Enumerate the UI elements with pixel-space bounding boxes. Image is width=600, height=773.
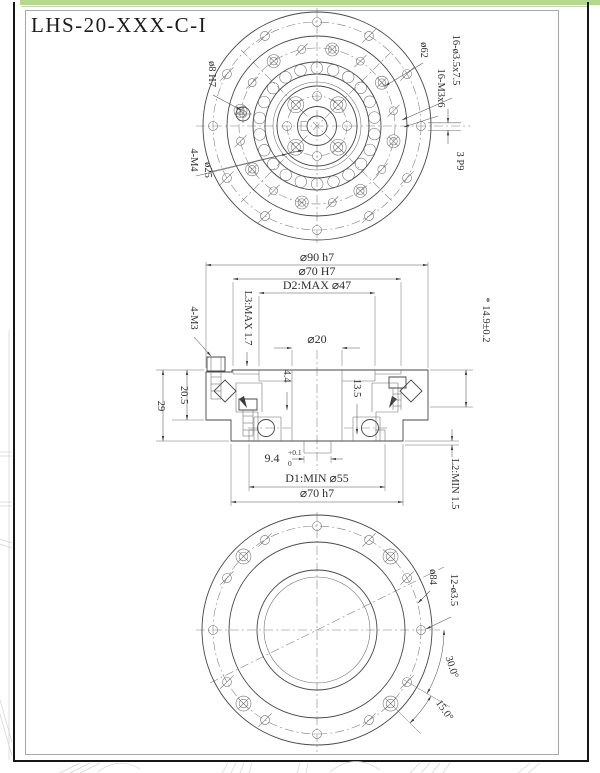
- label-l3: L3:MAX 1.7: [242, 291, 253, 346]
- label-9-4-tol-upper: +0.1: [288, 448, 302, 457]
- label-4-m4: 4-M4: [188, 148, 199, 172]
- label-29: 29: [155, 401, 166, 412]
- top-view: ø8 H7 4-M4 ø25 ø62 16-ø3.5x7.5 16-M3x6 3…: [188, 8, 470, 246]
- label-pin-hole: ø8 H7: [206, 61, 217, 87]
- label-16-m3x6: 16-M3x6: [435, 68, 446, 107]
- label-angle-15: 15.0°: [433, 698, 455, 723]
- label-dia84: ø84: [427, 569, 438, 586]
- label-9-4-tol-lower: 0: [288, 459, 292, 468]
- label-pilot-70: ⌀70 H7: [299, 264, 336, 278]
- label-4-m3: 4-M3: [188, 306, 199, 329]
- section-view: ⌀90 h7 ⌀70 H7 D2:MAX ⌀47 ⌀20 L3:MAX 1.7 …: [155, 250, 491, 509]
- label-bottom-pilot: ⌀70 h7: [300, 486, 334, 500]
- background-bleed-lines: [0, 330, 540, 773]
- label-dia62: ø62: [418, 42, 429, 58]
- label-bore-20: ⌀20: [307, 332, 326, 346]
- label-od-90: ⌀90 h7: [300, 250, 334, 264]
- label-angle-30: 30.0°: [443, 655, 460, 680]
- label-d1: D1:MIN ⌀55: [285, 471, 349, 485]
- label-9-4: 9.4: [265, 451, 280, 465]
- label-d2: D2:MAX ⌀47: [283, 278, 351, 292]
- label-13-5: 13.5: [351, 379, 362, 397]
- label-20-5: 20.5: [178, 386, 189, 404]
- cad-drawing: ø8 H7 4-M4 ø25 ø62 16-ø3.5x7.5 16-M3x6 3…: [0, 0, 600, 773]
- label-3-p9: 3 P9: [454, 152, 465, 171]
- label-l2: L2:MIN 1.5: [449, 459, 460, 510]
- roller-right: [400, 380, 422, 402]
- screw-4m3: [207, 357, 225, 371]
- label-dia25: ø25: [202, 162, 213, 178]
- bottom-view: ø84 12-ø3.5 30.0° 15.0°: [196, 512, 460, 752]
- label-4-4: 4.4: [281, 369, 292, 383]
- label-14-9: * 14.9±0.2: [480, 297, 491, 342]
- label-16-counterbore: 16-ø3.5x7.5: [450, 35, 461, 86]
- drawing-page: LHS-20-XXX-C-I: [0, 0, 600, 773]
- label-12-holes: 12-ø3.5: [448, 574, 459, 606]
